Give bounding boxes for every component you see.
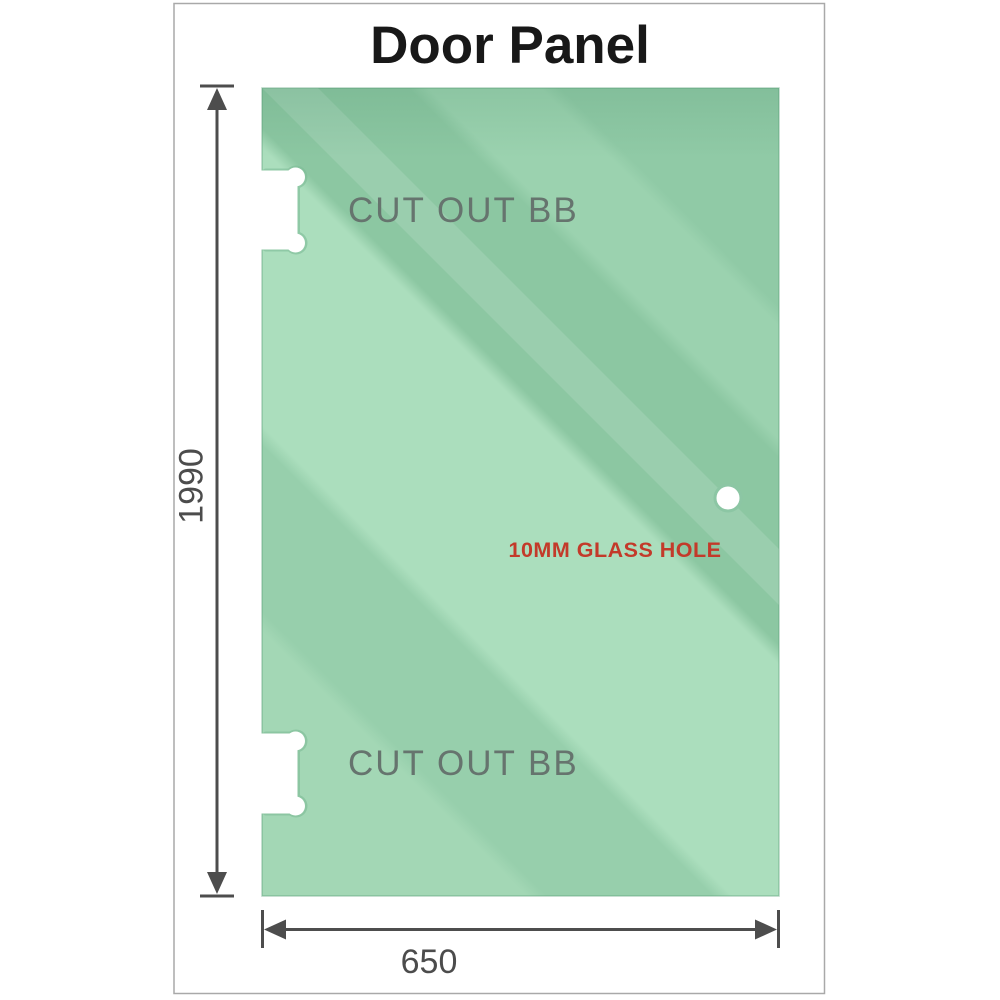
cutout-bottom-label: CUT OUT BB xyxy=(348,744,579,783)
width-dim-value: 650 xyxy=(401,943,458,981)
door-panel-diagram: Door Panel xyxy=(0,0,1000,1000)
glass-top-shade xyxy=(262,88,779,158)
cutout-top-label: CUT OUT BB xyxy=(348,191,579,230)
diagram-canvas: Door Panel xyxy=(0,0,1000,1000)
page-title: Door Panel xyxy=(370,16,650,75)
glass-hole xyxy=(715,485,741,511)
glass-panel: CUT OUT BB CUT OUT BB 10MM GLASS HOLE xyxy=(258,88,779,896)
height-dim-value: 1990 xyxy=(173,448,211,524)
glass-hole-label: 10MM GLASS HOLE xyxy=(509,538,722,562)
